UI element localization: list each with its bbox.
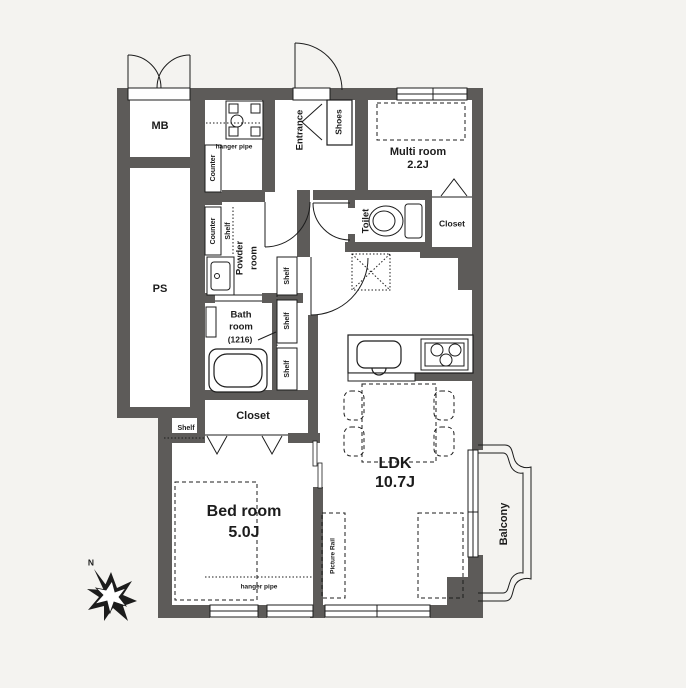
- label-shelf-bedroom: Shelf: [177, 425, 195, 432]
- label-ldk: LDK: [379, 455, 412, 472]
- label-toilet: Toilet: [361, 208, 372, 233]
- label-shelf-bath-lower: Shelf: [284, 360, 291, 378]
- label-compass-north: N: [88, 557, 94, 567]
- entrance-opening: [293, 88, 330, 100]
- bedroom-window-right: [267, 605, 313, 617]
- label-mb: MB: [151, 120, 168, 132]
- label-ps: PS: [153, 283, 168, 295]
- label-closet-upper: Closet: [439, 218, 465, 228]
- label-bath-2: room: [229, 322, 253, 333]
- label-counter-upper: Counter: [210, 154, 217, 181]
- label-balcony: Balcony: [498, 502, 510, 546]
- label-bedroom: Bed room: [207, 503, 282, 520]
- label-shelf-powder: Shelf: [284, 267, 291, 285]
- washing-machine-pan: [226, 101, 263, 139]
- label-powder-room-1: Powder: [235, 241, 246, 276]
- label-closet-lower: Closet: [236, 410, 270, 422]
- floorplan-svg: MB PS Entrance Shoes Multi room 2.2J Toi…: [0, 0, 686, 688]
- label-shoes: Shoes: [333, 109, 343, 135]
- label-shelf-counter: Shelf: [225, 222, 232, 240]
- label-hanger-pipe-bedroom: hanger pipe: [241, 584, 278, 591]
- balcony-door-window: [468, 450, 478, 557]
- multi-room-window: [397, 88, 467, 100]
- bathtub: [209, 349, 267, 392]
- label-bath-size: (1216): [228, 334, 253, 344]
- label-bath-1: Bath: [230, 310, 251, 321]
- label-picture-rail: Picture Rail: [330, 538, 337, 574]
- label-shelf-bath-upper: Shelf: [284, 312, 291, 330]
- stove: [421, 339, 468, 370]
- kitchen-sink: [357, 341, 401, 368]
- floorplan-canvas: MB PS Entrance Shoes Multi room 2.2J Toi…: [0, 0, 686, 688]
- label-ldk-size: 10.7J: [375, 474, 415, 491]
- bath-counter: [206, 307, 216, 337]
- label-powder-room-2: room: [249, 246, 260, 270]
- label-entrance: Entrance: [295, 110, 306, 151]
- ldk-window: [325, 605, 430, 617]
- toilet-fixture: [369, 204, 422, 238]
- mb-opening: [128, 88, 190, 100]
- label-multi-room-size: 2.2J: [407, 159, 428, 171]
- label-multi-room: Multi room: [390, 146, 446, 158]
- label-counter-lower: Counter: [210, 217, 217, 244]
- bedroom-window-left: [210, 605, 258, 617]
- label-hanger-pipe-powder: hanger pipe: [216, 144, 253, 151]
- powder-sink: [207, 257, 234, 295]
- label-bedroom-size: 5.0J: [228, 524, 259, 541]
